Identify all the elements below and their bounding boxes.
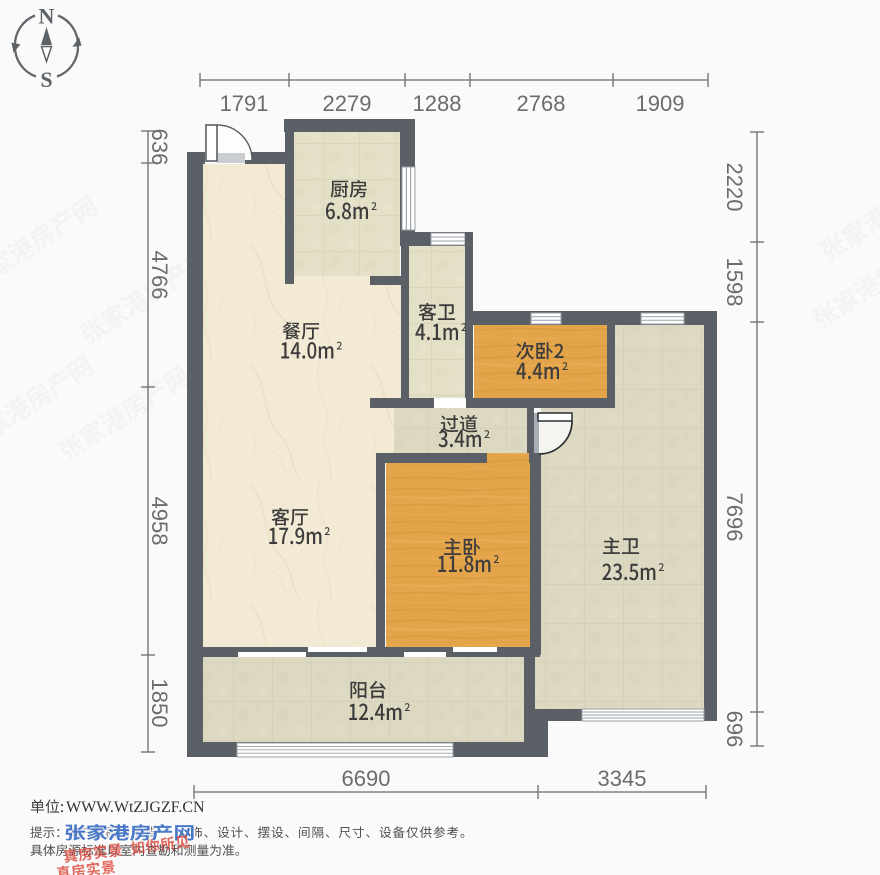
svg-text:4958: 4958 <box>147 497 172 546</box>
svg-text:S: S <box>40 67 52 92</box>
svg-text:1909: 1909 <box>636 91 685 116</box>
svg-text:2768: 2768 <box>517 91 566 116</box>
svg-text:3345: 3345 <box>598 766 647 791</box>
svg-text:1288: 1288 <box>413 91 462 116</box>
svg-text:N: N <box>39 4 55 29</box>
svg-text:1598: 1598 <box>722 258 747 307</box>
svg-text:WWW.WtZJGZF.CN: WWW.WtZJGZF.CN <box>66 799 205 816</box>
svg-text:2220: 2220 <box>722 163 747 212</box>
svg-text:696: 696 <box>722 711 747 748</box>
svg-text:7696: 7696 <box>722 493 747 542</box>
svg-text:1791: 1791 <box>220 91 269 116</box>
svg-text:636: 636 <box>147 129 172 166</box>
svg-text:4766: 4766 <box>147 251 172 300</box>
svg-text:2279: 2279 <box>323 91 372 116</box>
svg-text:1850: 1850 <box>147 679 172 728</box>
svg-text:6690: 6690 <box>342 766 391 791</box>
